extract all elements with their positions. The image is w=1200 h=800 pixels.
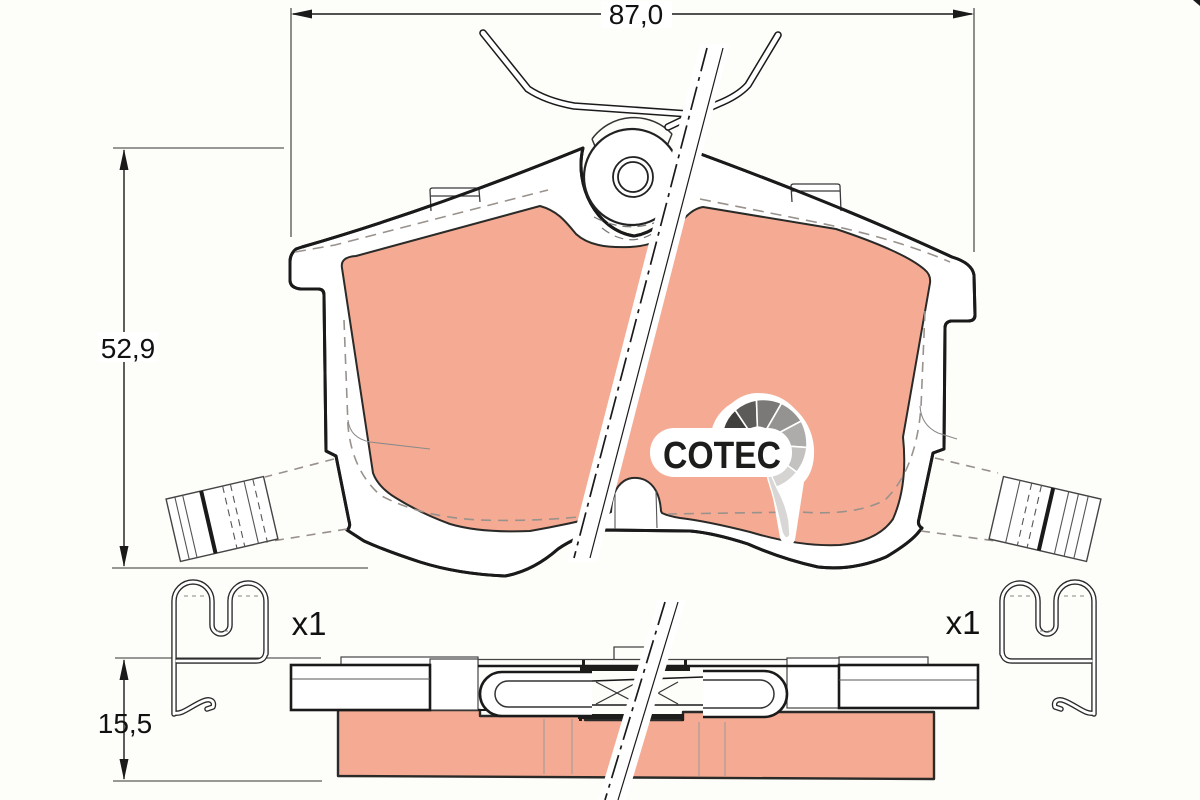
svg-text:87,0: 87,0 <box>609 0 664 30</box>
svg-text:x1: x1 <box>946 604 981 641</box>
svg-text:x1: x1 <box>292 605 327 642</box>
svg-text:15,5: 15,5 <box>98 708 153 739</box>
svg-text:COTEC: COTEC <box>663 435 781 477</box>
svg-text:52,9: 52,9 <box>101 333 156 364</box>
